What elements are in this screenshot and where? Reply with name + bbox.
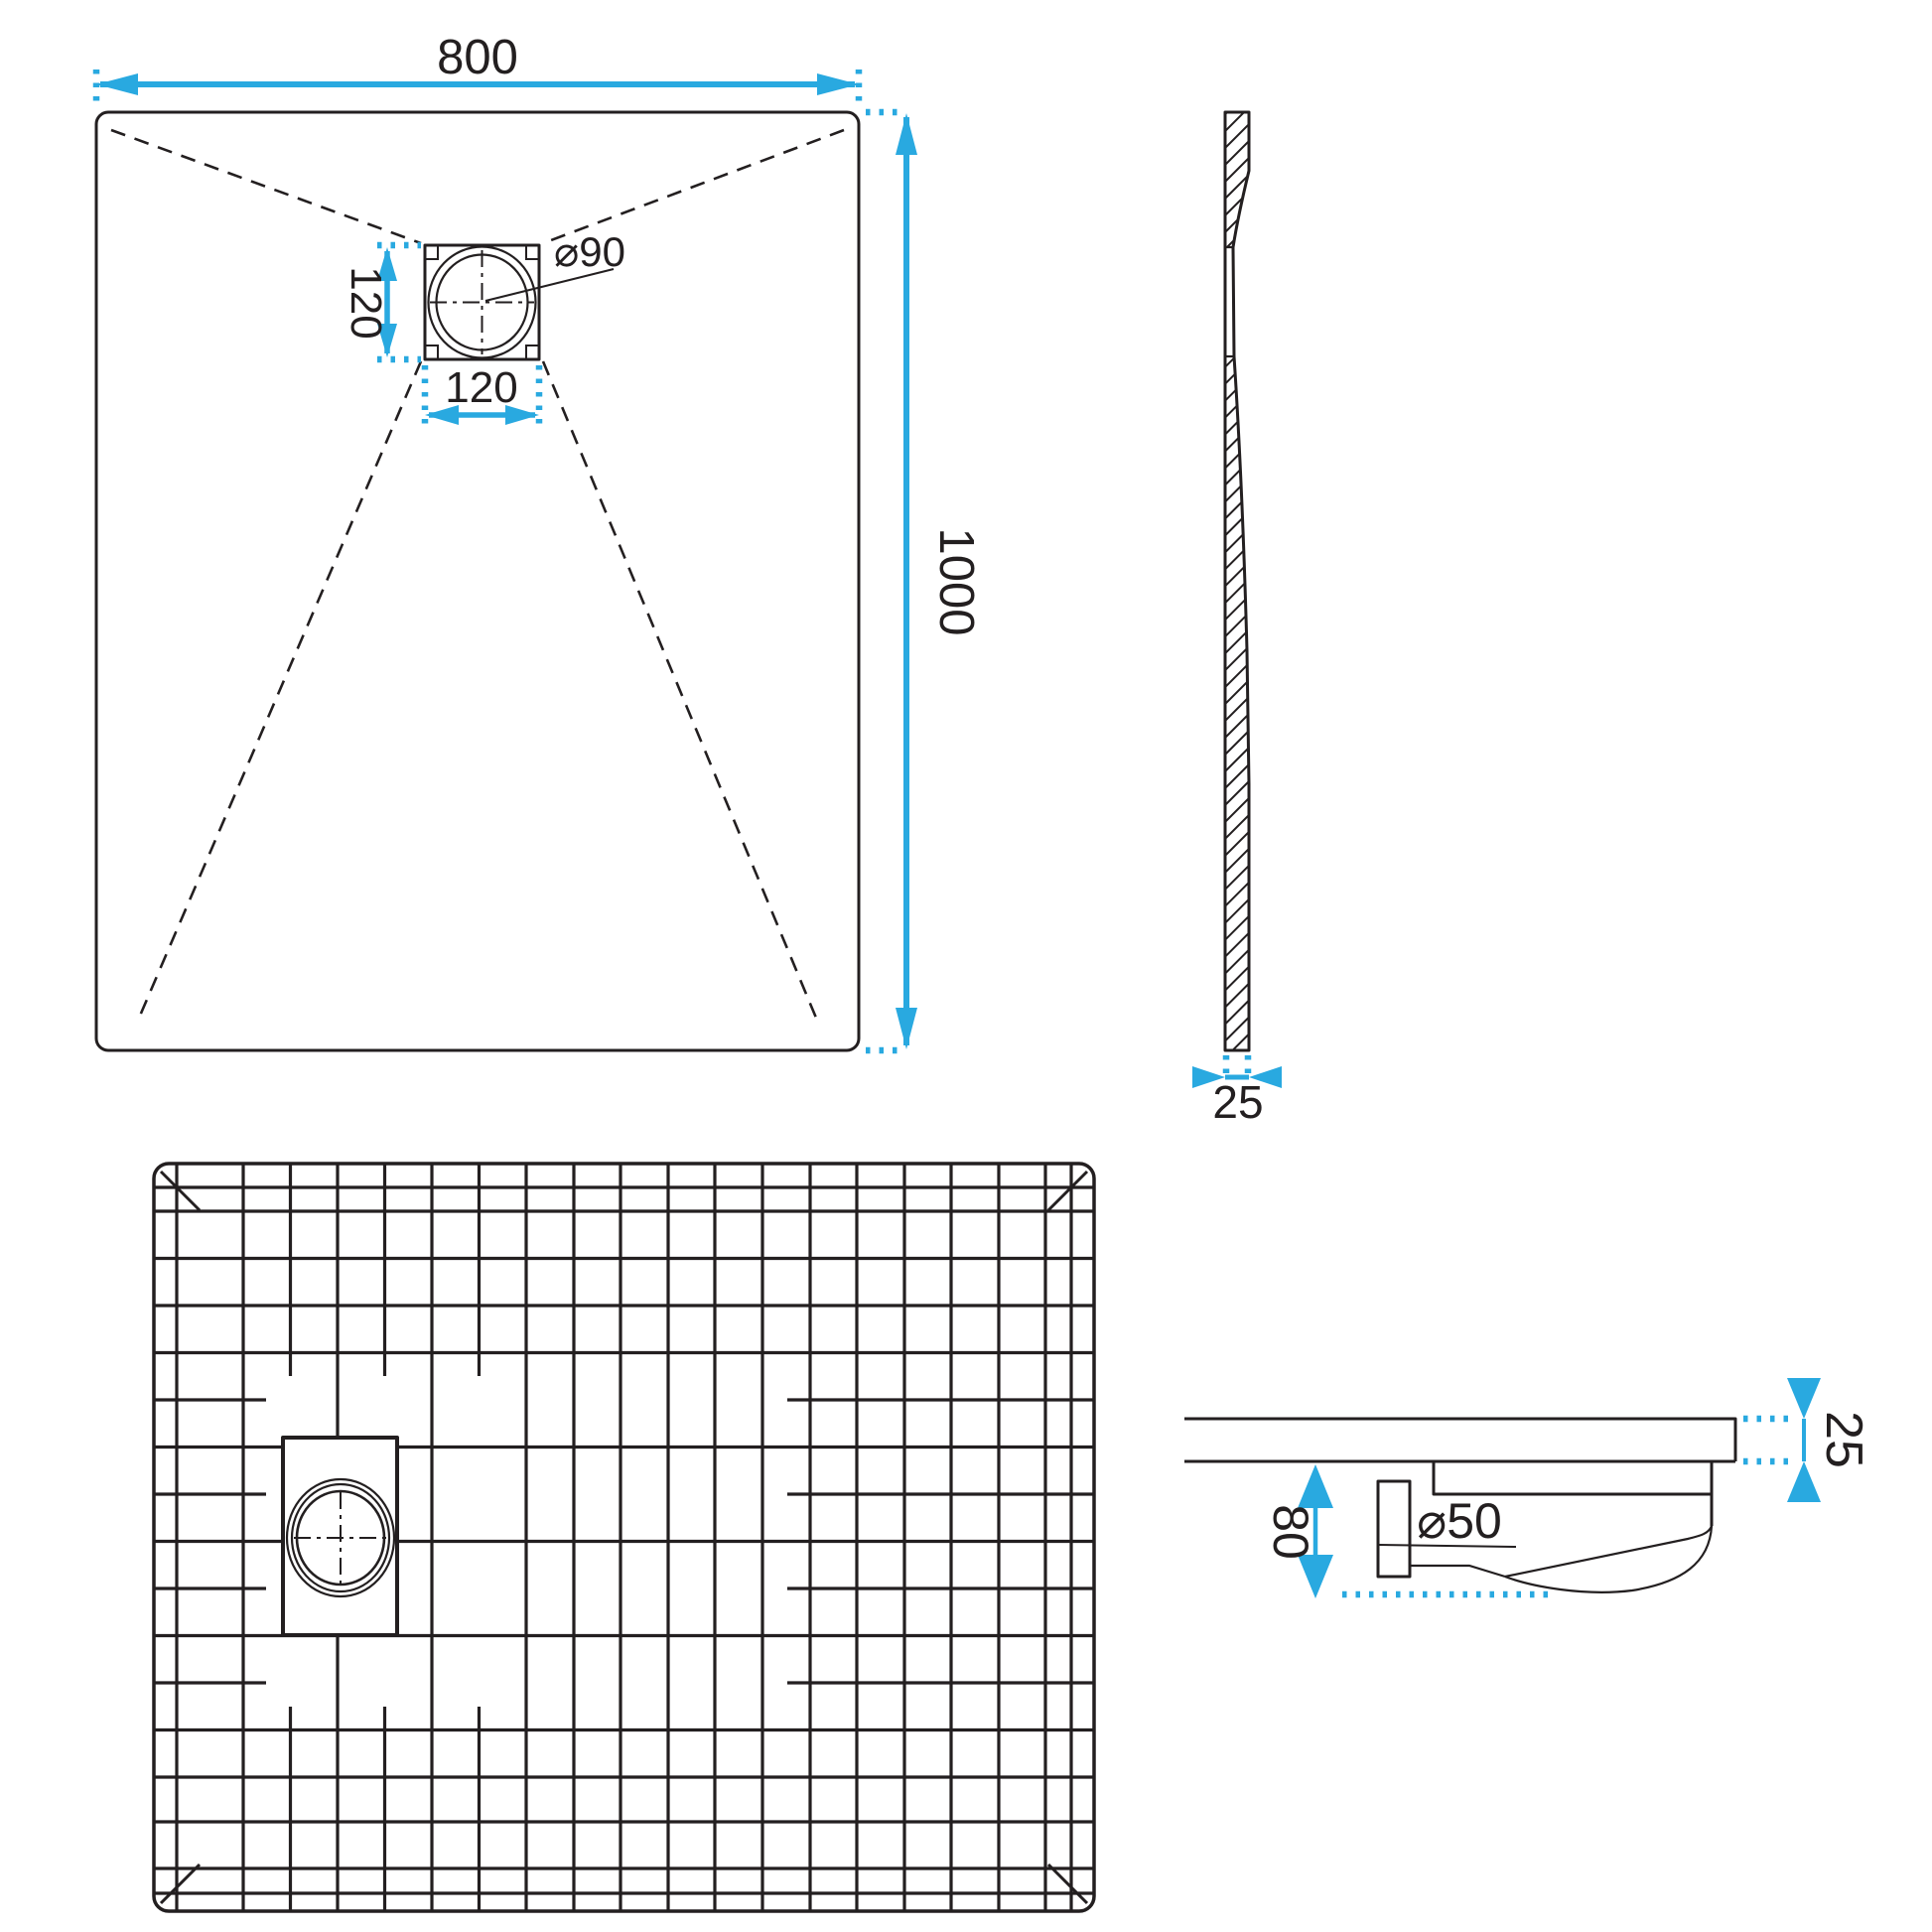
arrowhead-down <box>1298 1555 1333 1598</box>
drawing-canvas: 800 1000 120 120 ⌀90 <box>0 0 1932 1932</box>
arrowhead-up <box>1298 1464 1333 1508</box>
drain-detail-view: ⌀50 80 25 <box>1184 1378 1872 1598</box>
arrowhead-right <box>817 73 859 95</box>
outlet-pipe-bottom <box>1410 1566 1505 1577</box>
dim-800-label: 800 <box>437 31 518 84</box>
arrowhead-left <box>96 73 138 95</box>
arrowhead-down <box>896 1008 917 1049</box>
technical-drawing: 800 1000 120 120 ⌀90 <box>0 0 1932 1932</box>
dim-120h-label: 120 <box>445 363 517 412</box>
tray-edge-section <box>1184 1419 1735 1461</box>
dim-80-label: 80 <box>1263 1504 1318 1560</box>
dim-1000-label: 1000 <box>929 527 983 635</box>
side-section-view: 25 <box>1192 112 1282 1128</box>
dim-d50-label: ⌀50 <box>1417 1493 1502 1549</box>
dim-120v-label: 120 <box>342 266 390 339</box>
trap-bowl-outer <box>1505 1526 1712 1592</box>
arrowhead-up <box>896 113 917 155</box>
bottom-view <box>154 1164 1094 1911</box>
dim-25-label: 25 <box>1212 1076 1263 1128</box>
dim-25-label: 25 <box>1815 1411 1872 1468</box>
top-view: 800 1000 120 120 ⌀90 <box>96 31 983 1050</box>
outlet-flange <box>1378 1481 1410 1577</box>
trap-bowl-inner <box>1505 1526 1712 1577</box>
hatch-area-bottom <box>1225 356 1249 1050</box>
dim-d90-label: ⌀90 <box>554 228 625 275</box>
